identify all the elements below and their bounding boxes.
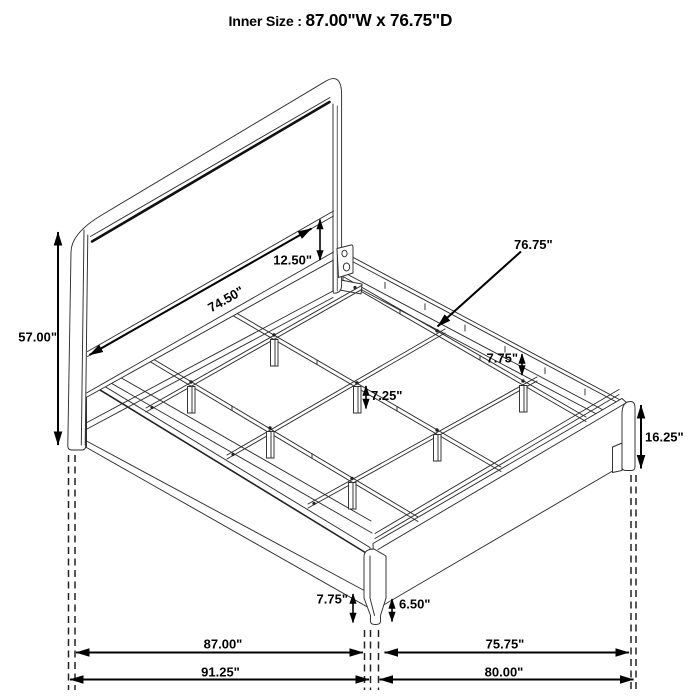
- svg-text:76.75": 76.75": [514, 237, 553, 252]
- svg-text:16.25": 16.25": [645, 430, 684, 445]
- svg-text:91.25": 91.25": [201, 665, 240, 680]
- svg-text:57.00": 57.00": [18, 330, 57, 345]
- svg-text:6.50": 6.50": [399, 597, 430, 612]
- svg-text:7.75": 7.75": [487, 351, 518, 366]
- svg-text:87.00": 87.00": [204, 637, 243, 652]
- svg-text:7.75": 7.75": [317, 592, 348, 607]
- svg-text:75.75": 75.75": [486, 637, 525, 652]
- svg-text:12.50": 12.50": [273, 253, 312, 268]
- svg-text:7.25": 7.25": [371, 388, 402, 403]
- svg-text:80.00": 80.00": [485, 665, 524, 680]
